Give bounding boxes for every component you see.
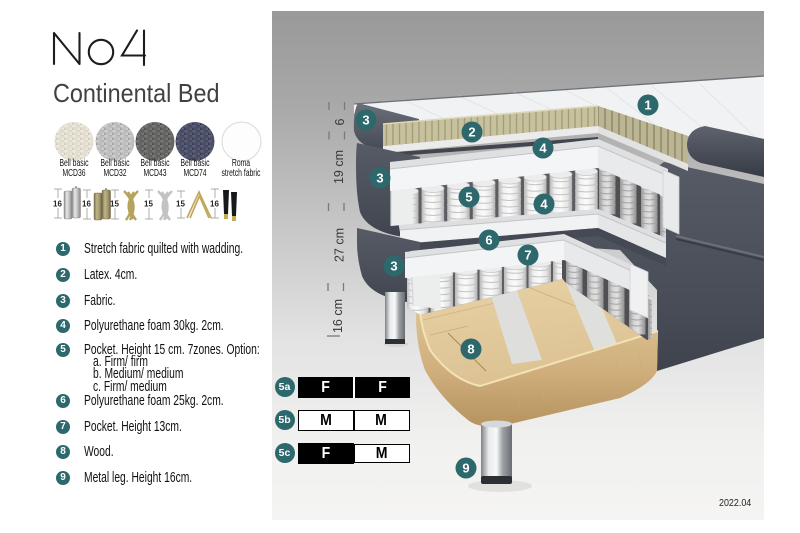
svg-text:15: 15 xyxy=(110,200,119,209)
svg-text:4: 4 xyxy=(540,197,548,212)
svg-text:3: 3 xyxy=(362,113,369,128)
svg-text:9: 9 xyxy=(462,461,469,476)
svg-text:5: 5 xyxy=(465,190,472,205)
svg-text:16: 16 xyxy=(82,200,91,209)
svg-text:6: 6 xyxy=(485,233,492,248)
svg-text:15: 15 xyxy=(144,200,153,209)
svg-text:1: 1 xyxy=(644,98,651,113)
svg-text:16 cm: 16 cm xyxy=(331,299,345,333)
svg-text:15: 15 xyxy=(176,200,185,209)
svg-text:4: 4 xyxy=(539,141,547,156)
svg-text:16: 16 xyxy=(210,200,219,209)
svg-text:16: 16 xyxy=(53,200,62,209)
svg-text:7: 7 xyxy=(524,248,531,263)
svg-text:3: 3 xyxy=(376,171,383,186)
svg-text:27 cm: 27 cm xyxy=(332,228,346,262)
svg-text:8: 8 xyxy=(467,342,474,357)
svg-text:6: 6 xyxy=(333,118,347,125)
svg-text:19 cm: 19 cm xyxy=(332,150,346,184)
svg-text:3: 3 xyxy=(390,259,397,274)
svg-text:2: 2 xyxy=(468,125,475,140)
